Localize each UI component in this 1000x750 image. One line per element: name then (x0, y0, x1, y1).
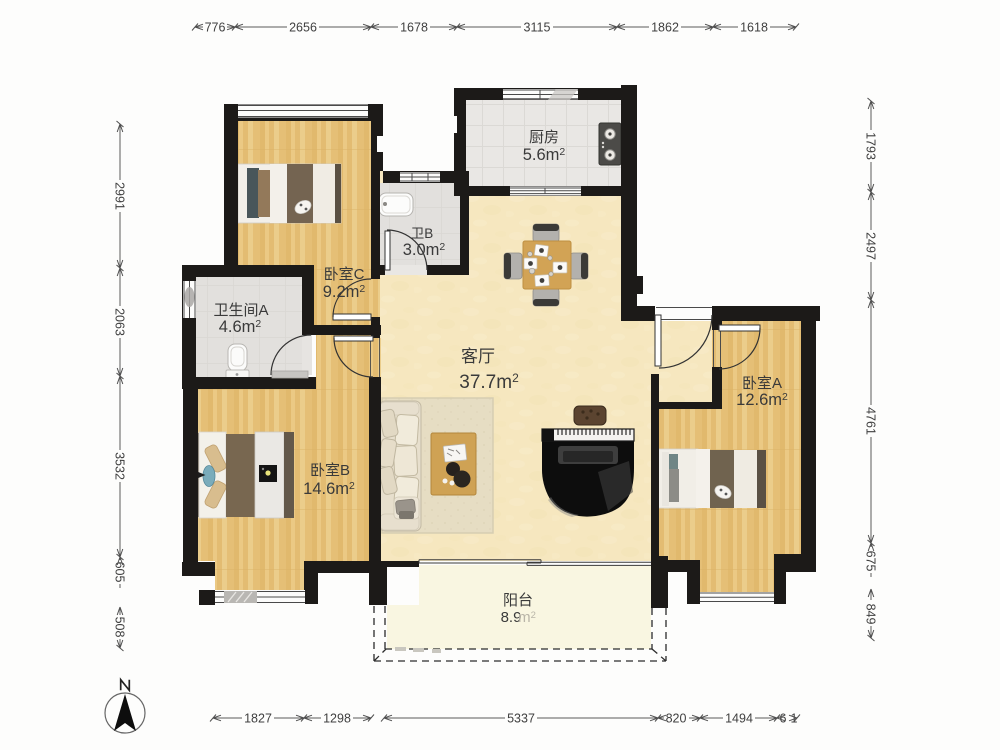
svg-text:776: 776 (205, 21, 226, 35)
svg-text:508: 508 (113, 617, 127, 638)
svg-text:820: 820 (666, 712, 687, 726)
svg-text:2656: 2656 (289, 21, 317, 35)
svg-text:12.6m2: 12.6m2 (736, 391, 788, 409)
svg-text:1494: 1494 (725, 712, 753, 726)
svg-text:5337: 5337 (507, 712, 535, 726)
svg-text:14.6m2: 14.6m2 (303, 480, 355, 498)
svg-text:卧室A: 卧室A (742, 375, 782, 392)
svg-text:卧室B: 卧室B (310, 462, 350, 479)
svg-text:卧室C: 卧室C (324, 266, 365, 283)
svg-text:849: 849 (864, 604, 878, 625)
svg-text:1678: 1678 (400, 21, 428, 35)
svg-text:2497: 2497 (864, 232, 878, 260)
svg-text:1793: 1793 (864, 132, 878, 160)
svg-text:3532: 3532 (113, 452, 127, 480)
svg-text:605: 605 (113, 562, 127, 583)
svg-text:厨房: 厨房 (529, 129, 559, 146)
svg-text:卫B: 卫B (411, 226, 434, 241)
svg-text:4761: 4761 (864, 407, 878, 435)
svg-text:6: 6 (780, 712, 787, 726)
svg-text:9.2m2: 9.2m2 (323, 283, 366, 301)
svg-text:1827: 1827 (244, 712, 272, 726)
svg-text:675: 675 (864, 551, 878, 572)
svg-text:3115: 3115 (524, 21, 551, 35)
svg-text:1298: 1298 (323, 712, 351, 726)
svg-text:5.6m2: 5.6m2 (523, 146, 566, 164)
svg-text:3.0m2: 3.0m2 (403, 241, 446, 259)
svg-text:1862: 1862 (651, 21, 679, 35)
svg-text:阳台: 阳台 (503, 592, 533, 609)
svg-text:4.6m2: 4.6m2 (219, 318, 262, 336)
svg-text:2063: 2063 (113, 308, 127, 336)
svg-text:37.7m2: 37.7m2 (459, 371, 519, 393)
svg-text:1618: 1618 (740, 21, 768, 35)
svg-text:卫生间A: 卫生间A (213, 302, 268, 319)
svg-text:2991: 2991 (113, 182, 127, 210)
svg-text:客厅: 客厅 (461, 347, 495, 366)
